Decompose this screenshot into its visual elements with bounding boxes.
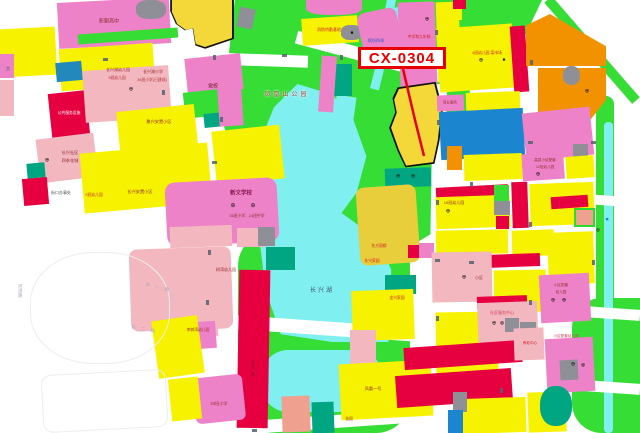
school-symbol: ⊕ [571,362,576,368]
faint-block-outline-1 [30,252,170,364]
label-highschool: 影剧高中 [99,20,119,25]
school-symbol: ⊕ [230,203,235,209]
parcel-pink-top-blob [306,0,362,15]
parcel-teal-small-2 [266,247,295,270]
parcel-teal-small-s [311,402,334,433]
label-peitao-1b: 幼儿园 [556,291,567,295]
label-fenghuang-yihao: 凤凰一号 [365,387,382,391]
parcel-blue-small-nw [55,61,83,82]
road-name-tick [469,261,474,264]
facility-gray-nw [136,0,166,19]
school-symbol: ⊕ [250,203,255,209]
label-shuwan-kindergarten: 树湾幼儿园 [216,268,236,272]
facility-gray-xinwen [258,227,275,246]
parcel-yellow-mid-west [211,125,284,186]
school-symbol: ⊕ [45,158,50,164]
road-name-tick [340,55,343,60]
label-9ban-note: 9班幼儿园 [108,77,125,81]
river-symbol: ⊕ [596,229,600,234]
label-plaza: 文化广场 [251,360,255,376]
school-symbol: ⊕ [562,298,567,304]
faint-block-outline-2 [41,369,169,433]
label-shangye-fuwu: 商业服务 [443,101,457,105]
label-36ban-note: 36班小学(已建成) [137,79,167,83]
label-gaoceng-peitao: 高层小区配套 [534,159,556,163]
red-band-a [403,340,522,370]
school-symbol: ⊕ [551,298,556,304]
school-symbol: ⊕ [536,172,541,178]
landmark-triangle-symbol: ▲ [350,31,355,36]
road-name-tick [208,250,211,255]
market-triangle-symbol: ▲ [502,58,507,63]
label-juxing-anzhi: 聚兴安置小区 [146,120,171,124]
road-name-tick [435,259,440,262]
parcel-salmon-greenline [576,210,593,225]
parcel-pink-west-edge [0,80,14,116]
label-fenghuangshan-park: 凤凰山公园 [264,92,309,98]
parcel-yellow-sw2 [168,377,202,422]
parcel-red-west-edge [22,177,49,206]
school-symbol: ⊕ [462,275,467,281]
road-name-tick [529,300,532,305]
label-cx-kindergarten: 长兴湖幼儿园 [106,68,130,72]
river-marker-symbol: ■ [605,218,608,223]
road-name-tick [162,90,165,95]
label-xiaoqu: 小区 [475,276,483,280]
road-name-tick [220,117,223,122]
label-peitao-2: 小区配套幼儿园 [553,335,578,339]
label-10ban-kindergarten: 10班幼儿园 [444,201,464,205]
label-xinwen-note: 36班小学、24班中学 [229,215,264,219]
road-name-tick [529,222,532,227]
red-strip-r4 [486,253,540,268]
label-cx-primary: 长兴湖小学 [143,70,163,74]
label-huayuan: 花园 [345,418,353,422]
school-symbol: ⊕ [585,89,590,95]
label-dongxing-jiayuan: 东兴家园 [364,260,379,264]
facility-gray-b [453,392,467,412]
facility-gray-orange [563,66,580,85]
parcel-teal-blob-br [540,386,572,426]
road-label-da: 大 [5,68,10,73]
parcel-green-small-r3 [494,185,509,201]
label-banshichu: 街口办事处 [51,191,71,195]
road-name-tick [213,55,216,60]
parcel-yellow-b1 [459,397,526,433]
label-yanglao-center: 养老中心 [523,342,537,346]
road-label-hebin: 河滨路 [18,284,23,298]
road-name-tick [500,388,503,393]
road-name-tick [528,141,533,144]
road-name-tick [436,316,439,321]
zoning-map-canvas: 凤凰山公园长兴湖影剧高中党校长兴湖幼儿园长兴湖小学9班幼儿园36班小学(已建成)… [0,0,640,433]
label-shequ-center: 社区服务中心 [490,311,514,315]
parcel-blue-small-b [448,410,463,433]
road-name-tick [252,429,257,432]
road-name-tick [437,120,440,125]
label-changxing-lake: 长兴湖 [310,288,334,294]
label-dangxiao: 党校 [208,85,218,90]
road-name-tick [282,54,287,57]
road-name-tick [591,141,596,144]
school-symbol: ⊕ [411,174,416,180]
parcel-orange-small-r2 [447,146,462,170]
road-name-tick [530,60,533,65]
school-symbol: ⊕ [129,87,134,93]
parcel-salmon-small-c [350,330,376,364]
label-xiaofang: 消防特勤基地 [317,28,341,32]
label-changxing-anzhi: 长兴安置小区 [127,190,152,194]
parcel-pink-east-school [398,1,438,86]
label-xinwen-school: 新文学校 [230,191,252,197]
facility-gray-r3 [494,201,510,215]
parcel-yellow-r2b [565,155,594,179]
label-jinxing-jiayuan: 金兴家园 [389,297,404,301]
parcel-salmon-xinwen-s1 [170,225,233,248]
parcel-yellow-r2c [464,153,523,181]
label-changxing-shequ: 长兴社区 [62,151,79,155]
school-symbol: ⊕ [492,321,497,327]
school-symbol: ⊕ [479,58,484,64]
parcel-salmon-small-s [281,396,310,433]
label-dongfang-lidu: 东方丽都 [371,245,386,249]
label-middle-school: 中学和九年制 [408,36,431,40]
parcel-callout-label: CX-0304 [369,50,435,67]
parcel-callout-cx-0304: CX-0304 [358,47,446,69]
road-name-tick [206,300,209,305]
school-symbol: ⊕ [425,17,430,23]
road-name-tick [103,58,108,61]
parcel-red-small-r3 [496,216,509,229]
red-strip-r3b [511,182,529,229]
label-lishuwan-kindergarten: 李树湾幼儿园 [187,329,210,333]
road-name-tick [436,200,439,205]
road-name-tick [592,260,595,265]
road-name-tick [470,182,473,187]
parcel-red-tiny-1 [408,245,419,258]
road-name-tick [212,161,217,164]
label-sijihuacheng: 四季花城 [62,159,79,163]
label-9ban-kindergarten: 9班幼儿园 [85,194,102,198]
label-peitao-1a: 小区配套 [554,284,568,288]
road-name-tick [435,30,438,35]
parcel-red-ne-small [453,0,466,9]
label-binfen-siji: 缤纷四季 [368,39,385,43]
label-34ban-primary: 34班小学 [210,402,227,406]
label-caishichang: 4班幼儿园 菜市场 [472,52,502,56]
school-symbol: ⊕ [396,174,401,180]
school-symbol: ⊕ [446,209,451,215]
label-12ban-kindergarten: 12班幼儿园 [536,166,554,170]
label-public-service: 公共服务设施 [58,112,81,116]
facility-symbol: ⊗ [500,321,505,327]
facility-symbol: ⊗ [581,363,586,369]
